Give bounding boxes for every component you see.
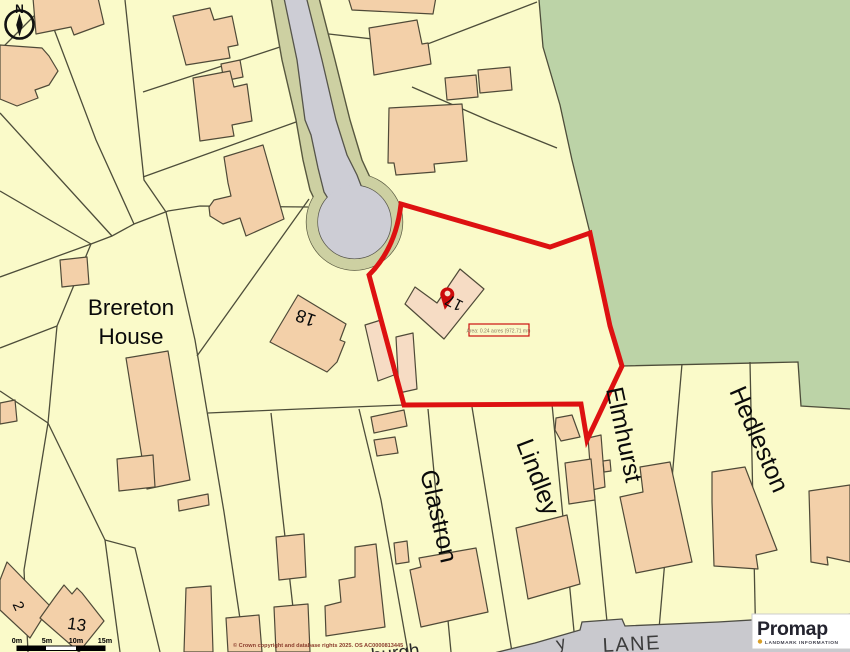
svg-text:Promap: Promap xyxy=(757,618,828,640)
svg-text:LANE: LANE xyxy=(602,632,661,652)
svg-text:13: 13 xyxy=(66,614,87,635)
svg-text:Brereton: Brereton xyxy=(88,295,174,320)
svg-text:5m: 5m xyxy=(42,636,52,645)
svg-text:© Crown copyright and database: © Crown copyright and database rights 20… xyxy=(233,642,403,649)
svg-text:10m: 10m xyxy=(69,636,83,645)
svg-text:Area: 0.24 acres (972.71 m²): Area: 0.24 acres (972.71 m²) xyxy=(467,329,531,335)
svg-text:15m: 15m xyxy=(98,636,112,645)
svg-text:0m: 0m xyxy=(12,636,22,645)
svg-text:N: N xyxy=(15,2,24,16)
svg-text:LANDMARK INFORMATION: LANDMARK INFORMATION xyxy=(765,640,839,646)
svg-text:House: House xyxy=(98,324,163,349)
